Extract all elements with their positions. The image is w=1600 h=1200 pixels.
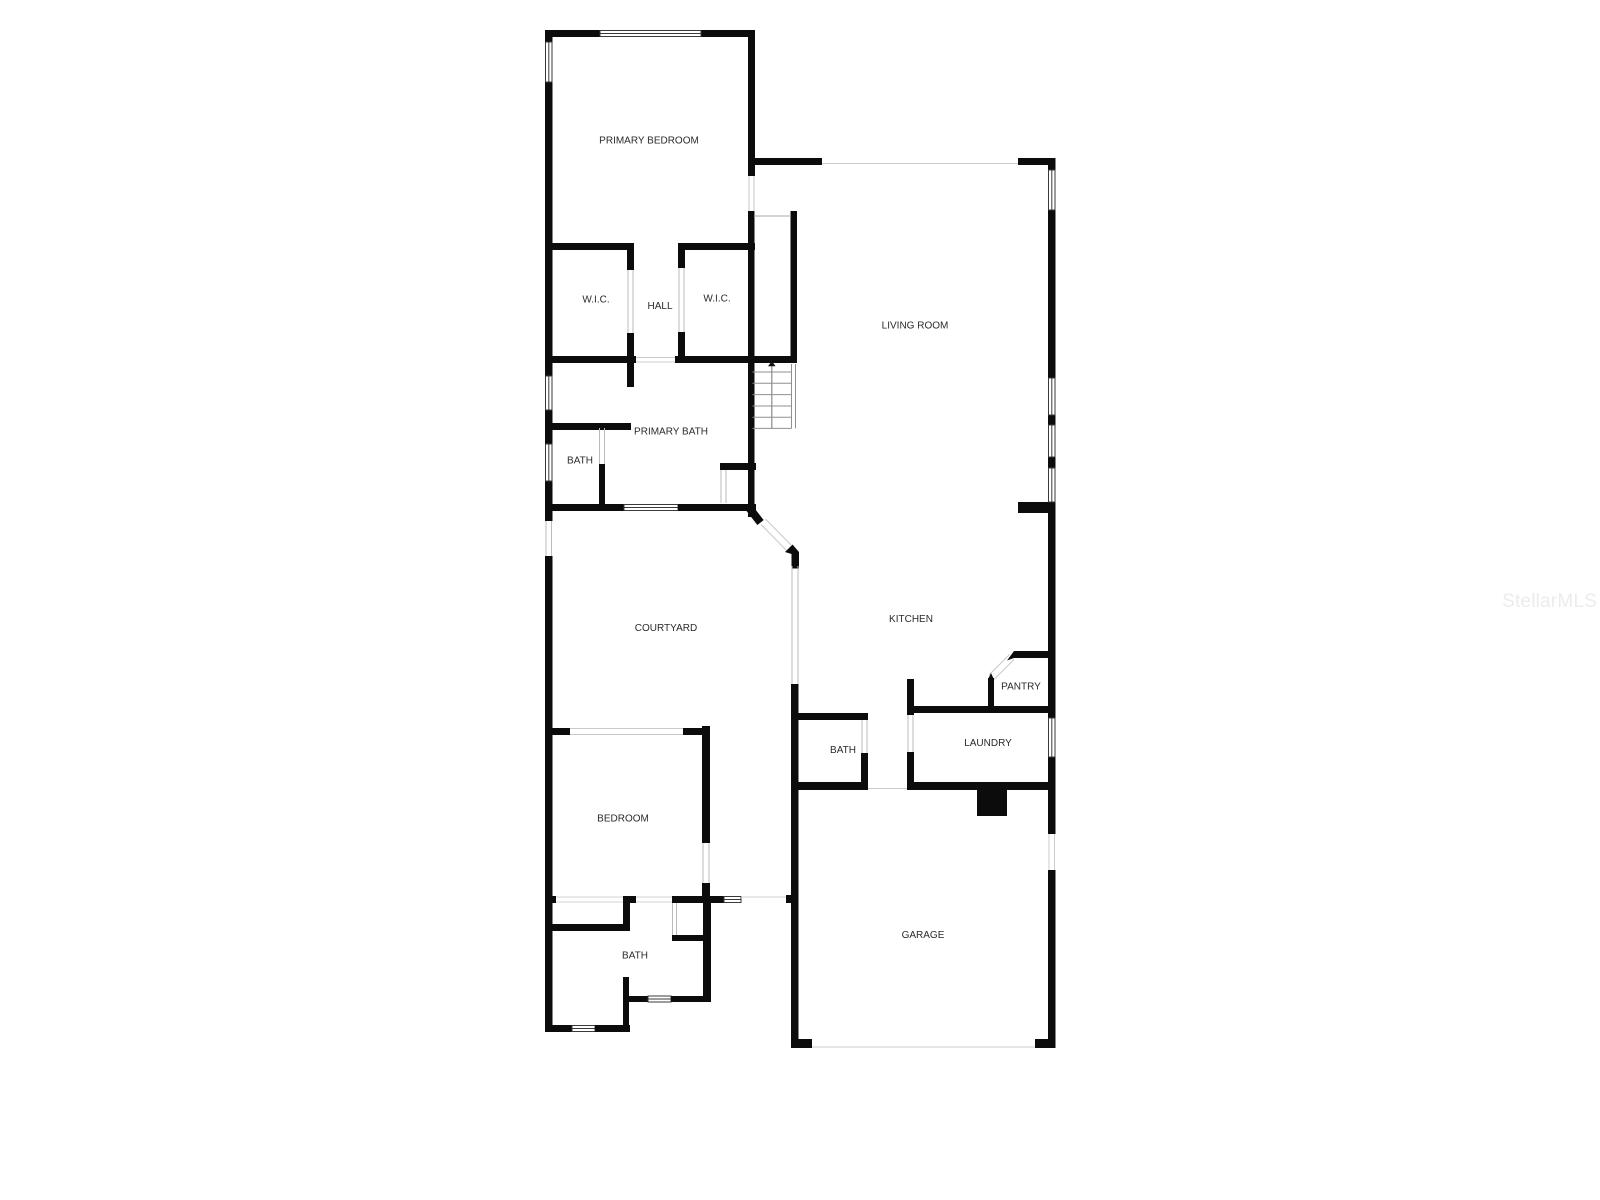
svg-text:BATH: BATH (567, 456, 593, 467)
svg-text:GARAGE: GARAGE (902, 930, 945, 941)
svg-text:LIVING ROOM: LIVING ROOM (882, 321, 949, 332)
svg-text:StellarMLS: StellarMLS (1502, 591, 1597, 612)
svg-text:W.I.C.: W.I.C. (582, 295, 609, 306)
svg-text:PANTRY: PANTRY (1001, 682, 1041, 693)
svg-text:W.I.C.: W.I.C. (703, 294, 730, 305)
svg-text:BEDROOM: BEDROOM (597, 814, 649, 825)
svg-text:BATH: BATH (622, 951, 648, 962)
svg-text:PRIMARY BEDROOM: PRIMARY BEDROOM (599, 136, 699, 147)
svg-text:BATH: BATH (830, 745, 856, 756)
svg-text:LAUNDRY: LAUNDRY (964, 738, 1012, 749)
svg-text:COURTYARD: COURTYARD (635, 623, 697, 634)
svg-text:HALL: HALL (647, 301, 672, 312)
svg-text:KITCHEN: KITCHEN (889, 614, 933, 625)
svg-text:PRIMARY BATH: PRIMARY BATH (634, 427, 708, 438)
